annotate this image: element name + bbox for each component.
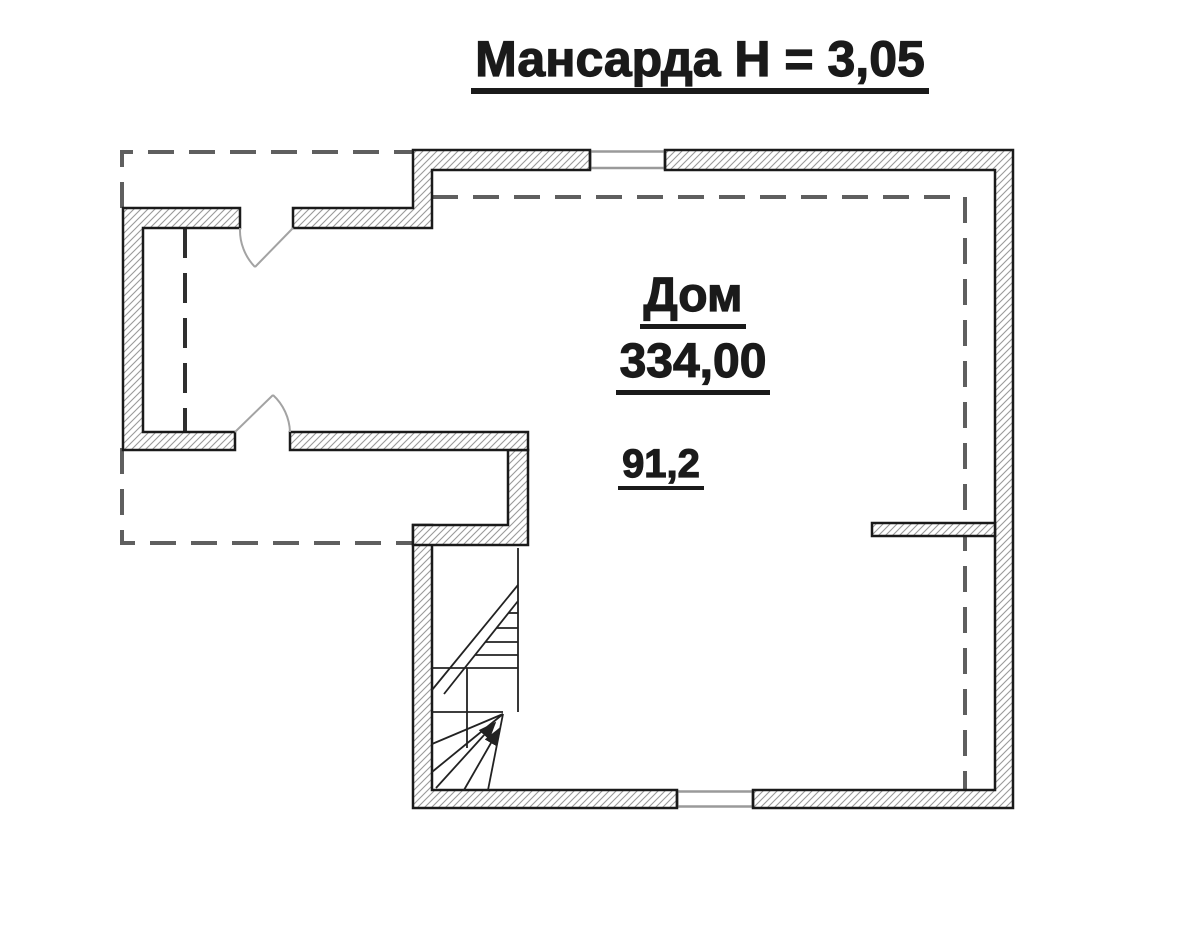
plan-title: Мансарда Н = 3,05 xyxy=(430,34,970,94)
room-name-text: Дом xyxy=(640,272,747,329)
door-lower xyxy=(235,395,290,432)
room-area-text: 334,00 xyxy=(616,338,771,395)
roof-line-northwest xyxy=(122,152,412,208)
wall-stairwell-north xyxy=(413,450,528,545)
wall-bottom-stairwell-west xyxy=(413,525,677,808)
staircase xyxy=(432,548,518,790)
roof-line-southwest xyxy=(122,448,412,543)
door-lower-swing-arc xyxy=(273,395,290,432)
door-upper xyxy=(240,228,293,267)
wall-corridor-south xyxy=(290,432,528,450)
roof-edge-dashed-lines xyxy=(122,152,965,790)
door-upper-swing-arc xyxy=(240,228,255,267)
area-note-label: 91,2 xyxy=(561,444,761,490)
wall-top-left xyxy=(293,150,590,228)
room-name-label: Дом 334,00 xyxy=(543,272,843,404)
area-note-text: 91,2 xyxy=(618,444,704,490)
plan-title-text: Мансарда Н = 3,05 xyxy=(471,34,929,94)
wall-stub-east xyxy=(872,523,995,536)
window-south xyxy=(677,790,753,808)
door-upper-leaf xyxy=(255,228,293,267)
window-north xyxy=(590,150,665,170)
wall-left-room xyxy=(123,208,240,450)
door-lower-leaf xyxy=(235,395,273,432)
